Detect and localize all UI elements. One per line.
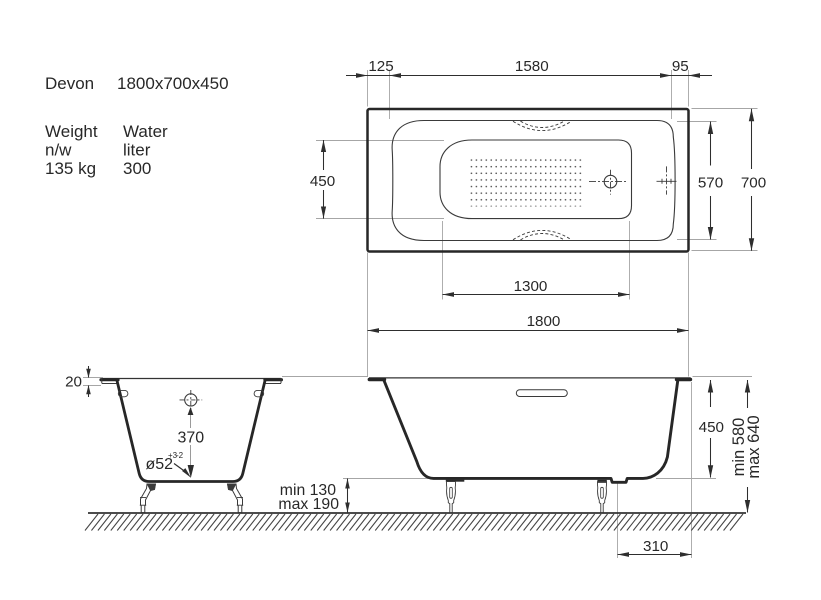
svg-text:1580: 1580 [515, 58, 549, 75]
svg-text:20: 20 [65, 373, 82, 390]
svg-text:liter: liter [123, 141, 151, 160]
svg-text:-2: -2 [176, 451, 184, 460]
svg-text:450: 450 [310, 173, 335, 190]
svg-text:Water: Water [123, 122, 168, 141]
svg-text:max 190: max 190 [278, 496, 339, 513]
svg-text:570: 570 [698, 175, 723, 192]
svg-text:310: 310 [643, 538, 668, 555]
svg-text:95: 95 [672, 58, 689, 75]
svg-text:300: 300 [123, 159, 151, 178]
svg-text:135 kg: 135 kg [45, 159, 96, 178]
svg-text:1800x700x450: 1800x700x450 [117, 74, 229, 93]
svg-text:Devon: Devon [45, 74, 94, 93]
svg-text:1300: 1300 [514, 278, 548, 295]
svg-text:n/w: n/w [45, 141, 72, 160]
svg-text:1800: 1800 [527, 313, 561, 330]
svg-text:125: 125 [368, 58, 393, 75]
svg-text:max 640: max 640 [745, 415, 763, 478]
svg-text:450: 450 [699, 419, 724, 436]
svg-text:370: 370 [177, 430, 204, 447]
svg-text:700: 700 [741, 175, 766, 192]
svg-text:Weight: Weight [45, 122, 98, 141]
